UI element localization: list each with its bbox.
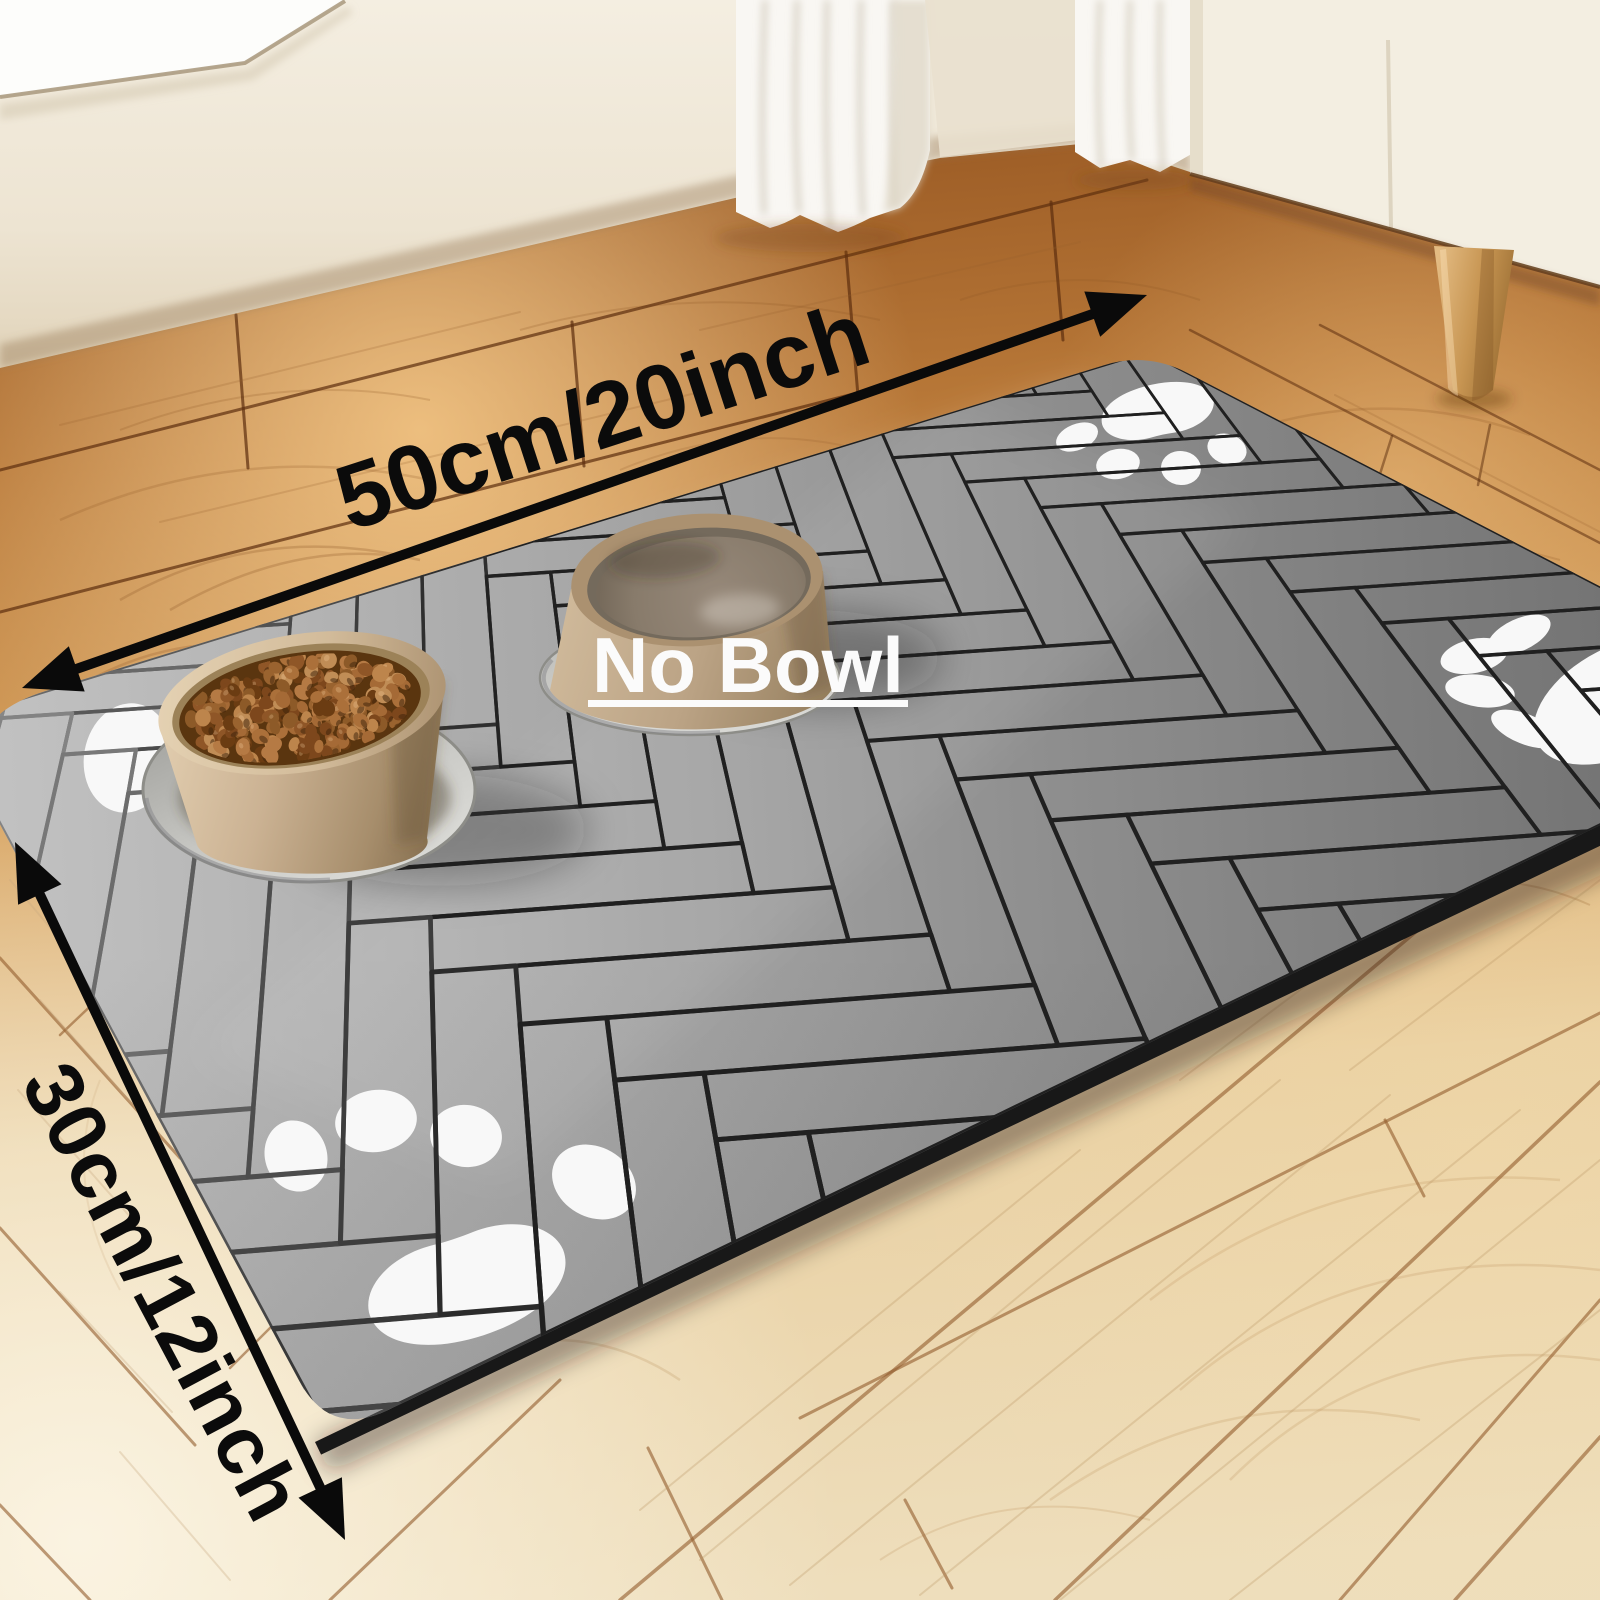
svg-text:No Bowl: No Bowl (592, 621, 904, 709)
